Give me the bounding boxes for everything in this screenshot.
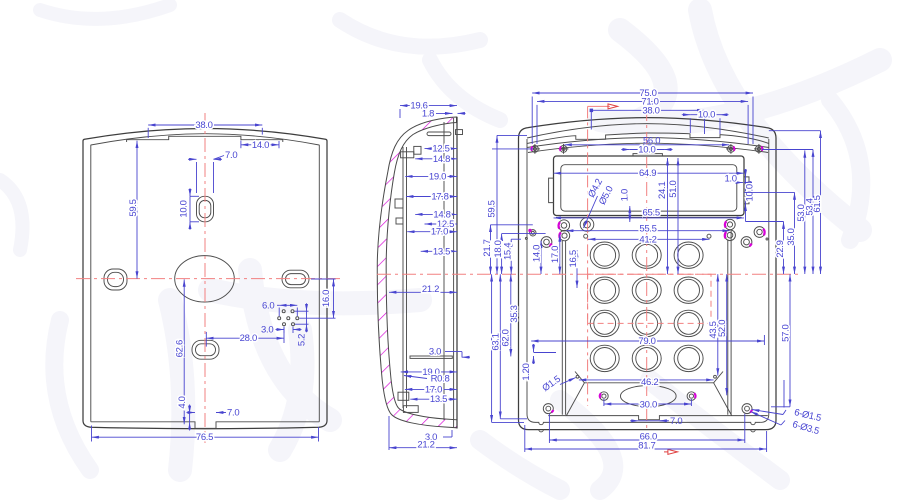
svg-text:3.0: 3.0 xyxy=(429,347,441,358)
svg-text:81.7: 81.7 xyxy=(638,441,655,452)
svg-text:59.5: 59.5 xyxy=(487,200,498,217)
svg-text:65.5: 65.5 xyxy=(643,208,660,219)
svg-text:17.0: 17.0 xyxy=(431,227,448,238)
svg-text:1.20: 1.20 xyxy=(521,363,532,380)
svg-text:52.0: 52.0 xyxy=(717,320,728,337)
svg-text:17.8: 17.8 xyxy=(431,192,448,203)
svg-text:17.0: 17.0 xyxy=(550,246,561,263)
svg-text:19.0: 19.0 xyxy=(429,171,446,182)
svg-text:6.0: 6.0 xyxy=(262,300,274,311)
svg-text:51.0: 51.0 xyxy=(668,180,679,197)
svg-text:76.5: 76.5 xyxy=(196,432,213,443)
svg-text:15.4: 15.4 xyxy=(503,243,514,260)
svg-text:14.0: 14.0 xyxy=(532,245,543,262)
svg-text:1.8: 1.8 xyxy=(422,108,434,119)
svg-text:13.5: 13.5 xyxy=(430,394,447,405)
svg-text:38.0: 38.0 xyxy=(195,120,212,131)
svg-text:16.0: 16.0 xyxy=(321,290,332,307)
svg-text:1.0: 1.0 xyxy=(724,174,736,185)
svg-text:4.0: 4.0 xyxy=(177,396,188,408)
svg-text:22.9: 22.9 xyxy=(775,240,786,257)
svg-text:7.0: 7.0 xyxy=(227,408,239,419)
svg-text:35.3: 35.3 xyxy=(509,305,520,322)
svg-text:13.5: 13.5 xyxy=(433,246,450,257)
svg-text:63.1: 63.1 xyxy=(491,333,502,350)
svg-text:57.0: 57.0 xyxy=(781,325,792,342)
svg-text:10.0: 10.0 xyxy=(698,110,715,121)
svg-text:1.0: 1.0 xyxy=(619,189,630,201)
svg-text:62.0: 62.0 xyxy=(500,329,511,346)
svg-text:21.7: 21.7 xyxy=(482,239,493,256)
svg-text:24.1: 24.1 xyxy=(657,182,668,199)
svg-text:41.2: 41.2 xyxy=(639,234,656,245)
svg-text:10.0: 10.0 xyxy=(638,145,655,156)
svg-text:7.0: 7.0 xyxy=(225,150,237,161)
svg-text:59.5: 59.5 xyxy=(128,199,139,216)
svg-text:28.0: 28.0 xyxy=(240,333,257,344)
svg-text:R0.8: R0.8 xyxy=(431,374,450,385)
svg-text:55.5: 55.5 xyxy=(639,224,656,235)
svg-text:53.0: 53.0 xyxy=(796,204,807,221)
svg-text:30.0: 30.0 xyxy=(640,399,657,410)
svg-text:38.0: 38.0 xyxy=(642,105,659,116)
svg-text:3.0: 3.0 xyxy=(261,325,273,336)
svg-text:21.2: 21.2 xyxy=(422,284,439,295)
svg-text:46.2: 46.2 xyxy=(641,377,658,388)
svg-text:16.5: 16.5 xyxy=(568,250,579,267)
svg-text:14.0: 14.0 xyxy=(252,140,269,151)
svg-text:5.2: 5.2 xyxy=(297,334,308,346)
svg-text:10.0: 10.0 xyxy=(179,200,190,217)
svg-text:79.0: 79.0 xyxy=(638,336,655,347)
svg-text:21.2: 21.2 xyxy=(417,439,434,450)
svg-text:64.9: 64.9 xyxy=(639,168,656,179)
svg-text:7.0: 7.0 xyxy=(670,416,682,427)
svg-text:14.8: 14.8 xyxy=(433,154,450,165)
svg-text:62.6: 62.6 xyxy=(175,340,186,357)
svg-text:35.0: 35.0 xyxy=(786,228,797,245)
